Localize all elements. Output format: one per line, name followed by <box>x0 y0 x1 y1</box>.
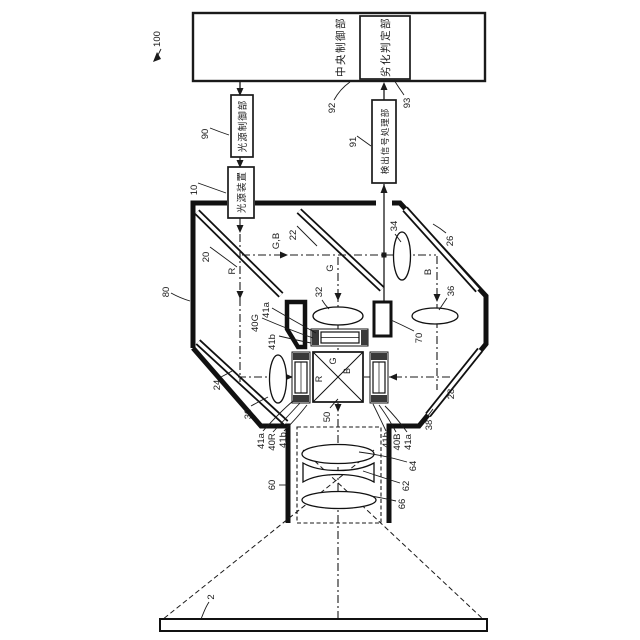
ref-label-60: 60 <box>267 480 278 491</box>
optical-diagram: 中央制御部 劣化判定部 光源制御部 光源装置 検出信号処理部 <box>0 0 640 640</box>
ref-label-50: 50 <box>322 412 333 423</box>
lcd-assembly-red <box>292 352 310 403</box>
ref-label-36: 36 <box>446 286 457 297</box>
beam-label-g: G <box>325 264 336 271</box>
mirror-26 <box>405 209 478 290</box>
ref-label-40B: 40B <box>392 434 403 451</box>
ref-label-28: 28 <box>446 389 457 400</box>
deterioration-judging-label: 劣化判定部 <box>379 17 392 77</box>
projection-lens-66 <box>302 492 376 509</box>
ref-label-66: 66 <box>397 499 408 510</box>
light-source-control-label: 光源制御部 <box>237 100 249 153</box>
ref-label-10: 10 <box>189 185 200 196</box>
beam-label-b: B <box>423 269 434 275</box>
ref-label-93: 93 <box>402 98 413 109</box>
ref-label-62: 62 <box>401 481 412 492</box>
prism-face-label-b: B <box>342 368 352 374</box>
relay-lens-36 <box>412 308 458 324</box>
light-source-device-label: 光源装置 <box>236 171 248 213</box>
projection-lens-64 <box>302 445 374 464</box>
patent-figure-canvas: 中央制御部 劣化判定部 光源制御部 光源装置 検出信号処理部 <box>0 0 640 640</box>
ref-label-90: 90 <box>200 129 211 140</box>
ref-label-100: 100 <box>152 31 163 47</box>
ref-label-70: 70 <box>414 333 425 344</box>
ref-label-40G: 40G <box>250 314 261 332</box>
light-detector-70 <box>374 302 391 336</box>
ref-label-34: 34 <box>389 221 400 232</box>
prism-face-label-g: G <box>328 357 338 364</box>
ref-label-38: 38 <box>424 420 435 431</box>
ref-label-22: 22 <box>288 230 299 241</box>
mirror-38 <box>428 350 480 415</box>
ref-label-20: 20 <box>201 252 212 263</box>
central-control-label: 中央制御部 <box>334 17 347 77</box>
lens-32 <box>313 307 363 325</box>
ref-label-41a-red: 41a <box>256 432 267 449</box>
beam-label-r: R <box>227 267 238 274</box>
ref-label-64: 64 <box>408 461 419 472</box>
ref-label-41b-red: 41b <box>278 432 289 448</box>
ref-label-30: 30 <box>243 409 254 420</box>
ref-label-41b-blue: 41b <box>381 432 392 448</box>
ref-100-arrowhead <box>153 52 161 62</box>
lcd-assembly-green <box>311 329 368 346</box>
ref-label-24: 24 <box>212 380 223 391</box>
ref-label-92: 92 <box>327 103 338 114</box>
ref-label-80: 80 <box>161 287 172 298</box>
relay-lens-34 <box>394 232 411 280</box>
lcd-assembly-blue <box>370 352 388 403</box>
ref-label-91: 91 <box>348 137 359 148</box>
connection-arrowheads <box>237 82 388 258</box>
ref-label-32: 32 <box>314 287 325 298</box>
ref-label-41a-blue: 41a <box>403 433 414 450</box>
dichroic-mirror-22 <box>299 211 382 289</box>
beam-label-gb: G,B <box>271 233 282 249</box>
ref-label-2: 2 <box>206 594 217 599</box>
field-lens-30 <box>270 355 287 403</box>
ref-label-40R: 40R <box>267 433 278 451</box>
projection-screen <box>160 619 487 631</box>
ref-label-41b-green: 41b <box>267 334 278 350</box>
ref-label-26: 26 <box>445 236 456 247</box>
prism-face-label-r: R <box>314 375 324 382</box>
ref-label-41a-green: 41a <box>261 301 272 318</box>
detection-signal-processing-label: 検出信号処理部 <box>380 108 390 175</box>
